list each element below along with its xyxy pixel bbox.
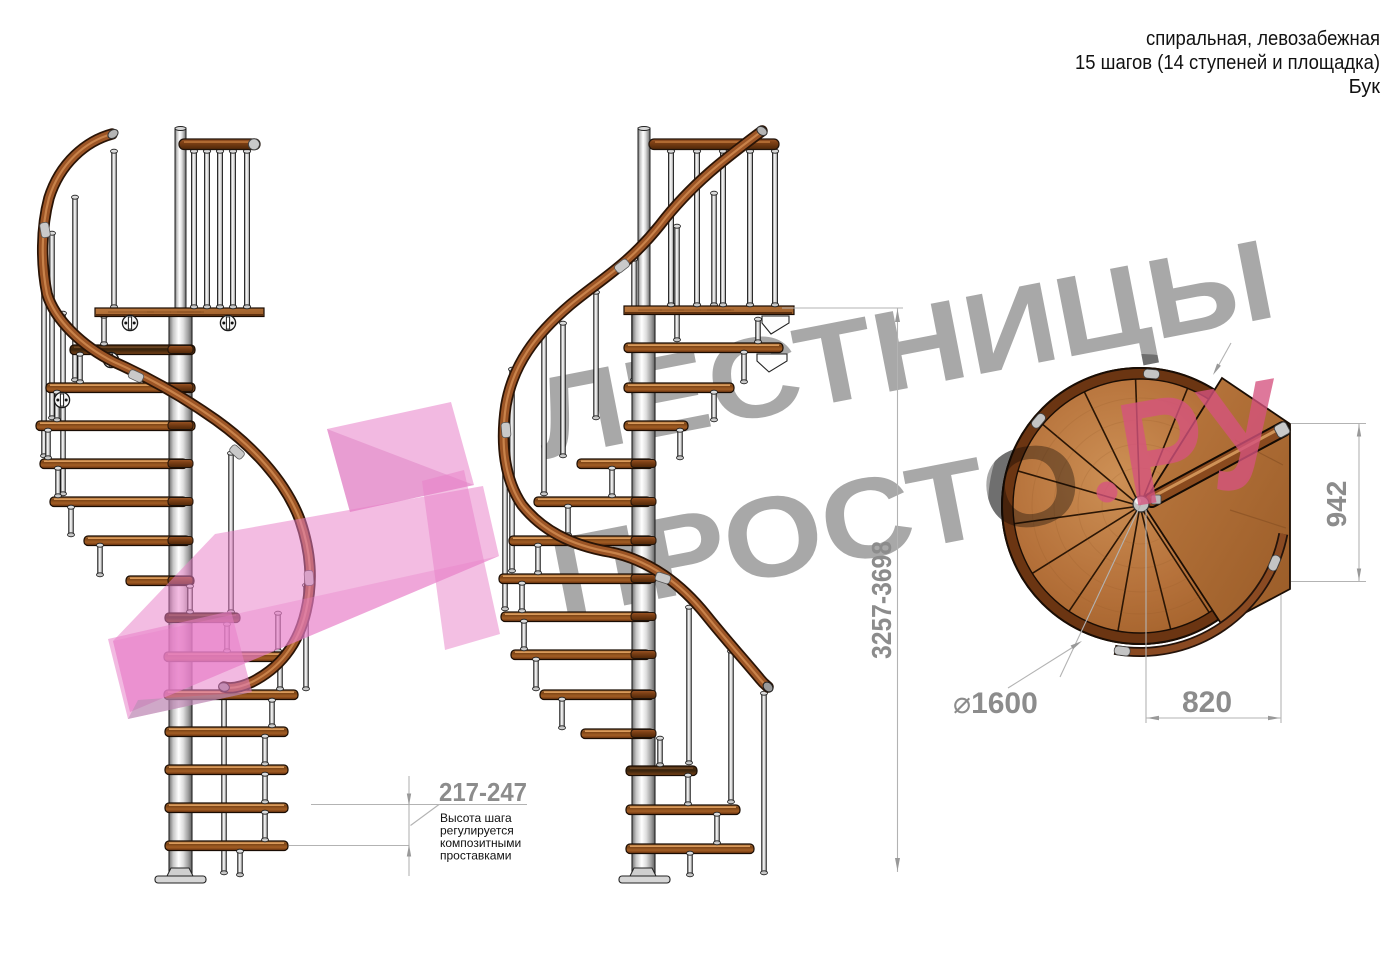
svg-text:РУ: РУ (1107, 347, 1298, 538)
svg-text:⌀1600: ⌀1600 (953, 687, 1038, 720)
svg-text:820: 820 (1182, 686, 1232, 719)
svg-text:942: 942 (1321, 481, 1352, 528)
svg-text:3257-3698: 3257-3698 (866, 541, 897, 659)
svg-text:спиральная, левозабежная: спиральная, левозабежная (1146, 28, 1380, 50)
svg-text:проставками: проставками (440, 849, 511, 863)
svg-text:217-247: 217-247 (439, 777, 527, 807)
svg-text:Бук: Бук (1349, 76, 1381, 98)
svg-text:15 шагов (14 ступеней и площад: 15 шагов (14 ступеней и площадка) (1075, 52, 1380, 74)
